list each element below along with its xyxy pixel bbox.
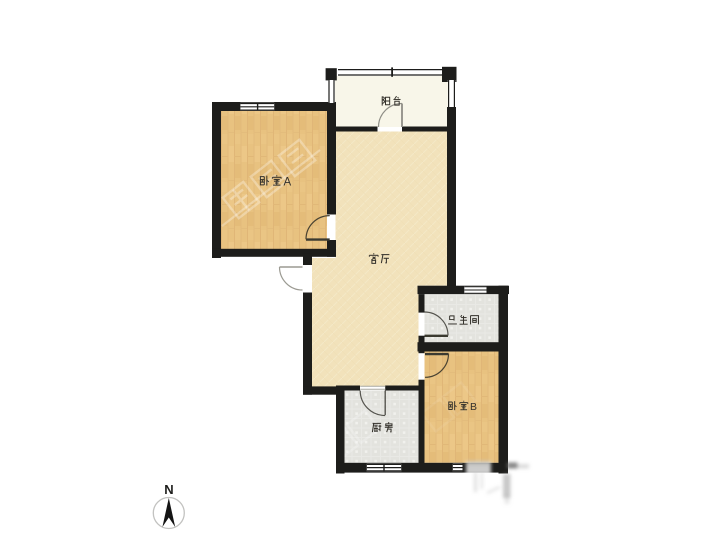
- svg-text:N: N: [164, 482, 173, 497]
- svg-text:B: B: [470, 401, 477, 413]
- svg-text:A: A: [284, 176, 292, 188]
